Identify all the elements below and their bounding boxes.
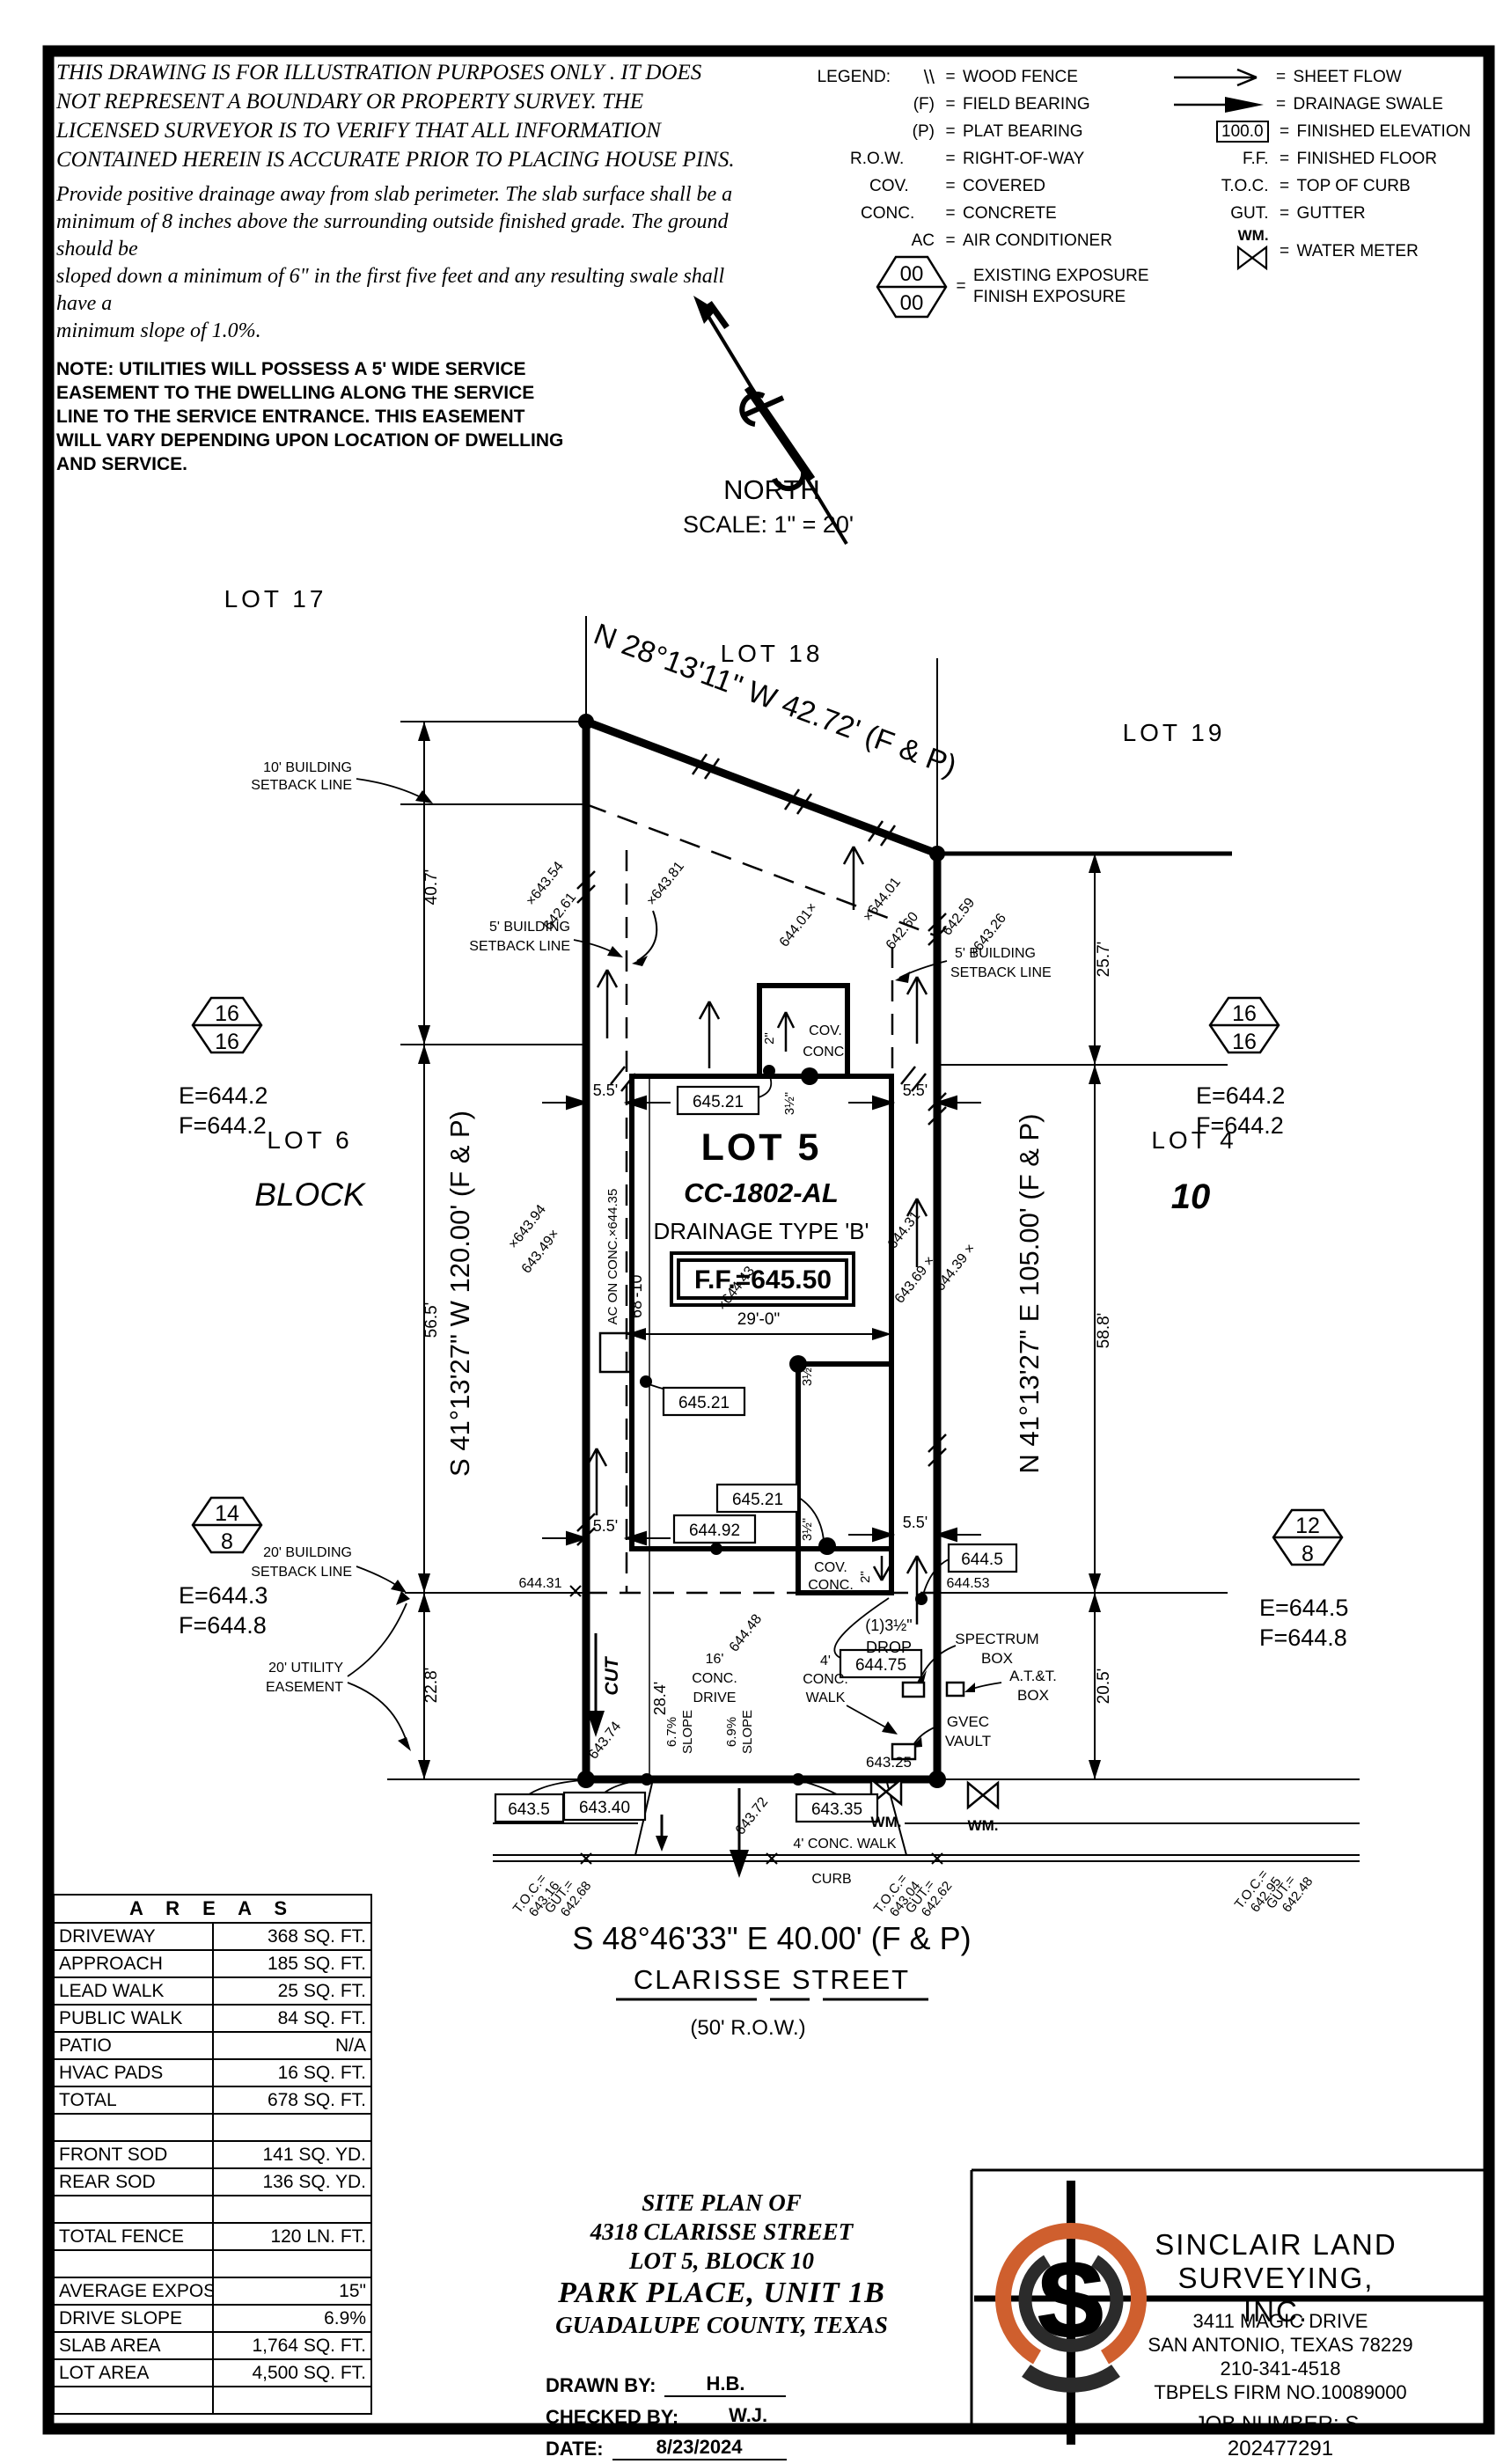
table-row: HVAC PADS16 SQ. FT. [54,2059,371,2086]
dim-29-0: 29'-0" [737,1310,780,1329]
signature-block: DRAWN BY: H.B. CHECKED BY: W.J. DATE: 8/… [546,2365,862,2460]
area-value: N/A [213,2032,372,2059]
street-name: CLARISSE STREET [634,1964,910,1995]
water-meter-legend-sym: WM. [1172,227,1272,276]
table-row: LEAD WALK25 SQ. FT. [54,1977,371,2005]
legend-row: AC=AIR CONDITIONER [799,227,1149,254]
dim-56-5: 56.5' [422,1302,441,1338]
right-bearing: N 41°13'27" E 105.00' (F & P) [1014,1113,1045,1473]
date-value: 8/23/2024 [612,2436,787,2460]
legend-row: COV.=COVERED [799,172,1149,200]
spectrum-l2: BOX [981,1650,1013,1667]
table-row [54,2114,371,2141]
legend-label: FINISHED FLOOR [1297,150,1437,169]
elev-64325: 643.25 [866,1754,912,1771]
area-value: 185 SQ. FT. [213,1950,372,1977]
area-value: 1,764 SQ. FT. [213,2332,372,2359]
spot-elev: ×644.01 [861,875,904,924]
exposure-legend-text: EXISTING EXPOSURE FINISH EXPOSURE [973,266,1149,308]
slope69-a: 6.9% [724,1717,739,1747]
title-block: SITE PLAN OF 4318 CLARISSE STREET LOT 5,… [488,2189,955,2340]
area-value: 141 SQ. YD. [213,2141,372,2168]
areas-table: A R E A S DRIVEWAY368 SQ. FT. APPROACH18… [53,1894,372,2415]
area-value: 136 SQ. YD. [213,2168,372,2196]
elev-box: 643.35 [811,1800,862,1819]
leader-arrowheads [391,790,975,1751]
drawn-by-value: H.B. [664,2372,786,2397]
area-label: DRIVE SLOPE [54,2305,213,2332]
exposure-finish: 8 [221,1529,233,1554]
finished-elevation-sym: 100.0 [1216,121,1269,143]
table-row: PUBLIC WALK84 SQ. FT. [54,2005,371,2032]
dim-5-5-ur: 5.5' [903,1082,928,1099]
elev-box: 645.21 [693,1093,744,1111]
title-line5: GUADALUPE COUNTY, TEXAS [488,2311,955,2340]
legend-left-column: LEGEND: \\ = WOOD FENCE (F)=FIELD BEARIN… [799,63,1149,319]
table-row [54,2196,371,2223]
firm-phone: 210-341-4518 [1144,2357,1417,2380]
exposure-existing: 14 [215,1501,239,1526]
drawn-by-label: DRAWN BY: [546,2374,656,2397]
e-elev: E=644.5 [1259,1595,1348,1621]
half3: 3½" [800,1518,815,1541]
areas-table-block: A R E A S DRIVEWAY368 SQ. FT. APPROACH18… [53,1894,372,2415]
area-label: PUBLIC WALK [54,2005,213,2032]
dim-5-5-ll: 5.5' [593,1517,618,1535]
gvec-l2: VAULT [945,1733,991,1749]
table-row: LOT AREA4,500 SQ. FT. [54,2359,371,2387]
field-bearing-sym: (F) [896,95,938,114]
legend: LEGEND: \\ = WOOD FENCE (F)=FIELD BEARIN… [799,63,1470,319]
setback5R-l2: SETBACK LINE [950,965,1052,980]
table-row [54,2250,371,2277]
legend-row: WM. =WATER METER [1172,227,1471,276]
exposure-bottom: 00 [900,291,924,315]
elev-box: 645.21 [732,1491,783,1509]
area-value: 6.9% [213,2305,372,2332]
wm2-label: WM. [968,1817,999,1834]
half2: 3½" [800,1363,815,1386]
slope67-a: 6.7% [664,1717,679,1747]
walk4-a: 4' [820,1654,831,1668]
curb-label: CURB [811,1872,851,1887]
wood-fence-icon: \\ [896,66,938,89]
spot-elev: 644.48 [727,1611,766,1654]
plat-bearing-sym: (P) [896,122,938,142]
area-label: TOTAL [54,2086,213,2114]
firm-address-1: 3411 MAGIC DRIVE [1144,2309,1417,2333]
walk4-b: CONC. [803,1672,848,1687]
ff-value: F.F.=645.50 [694,1265,832,1294]
att-l2: BOX [1017,1687,1049,1704]
water-meter-legend-icon [1236,245,1269,271]
legend-label: SHEET FLOW [1294,68,1402,87]
area-value: 16 SQ. FT. [213,2059,372,2086]
half1: 3½" [782,1092,797,1115]
legend-label: GUTTER [1297,204,1366,224]
legend-label: FIELD BEARING [963,95,1090,114]
table-row [54,2387,371,2414]
dim-25-7: 25.7' [1095,942,1113,978]
dim-20-5: 20.5' [1095,1668,1113,1705]
legend-row: F.F.=FINISHED FLOOR [1172,145,1471,172]
elev-box: 644.5 [961,1551,1003,1569]
att-l1: A.T.&T. [1009,1668,1057,1684]
disclaimer-para1: THIS DRAWING IS FOR ILLUSTRATION PURPOSE… [56,58,760,174]
ac-sym: AC [896,231,938,251]
legend-row: CONC.=CONCRETE [799,200,1149,227]
logo-letter: S [1037,2242,1106,2358]
legend-row: LEGEND: \\ = WOOD FENCE [799,63,1149,91]
spot-elev: 644.53 [947,1576,990,1591]
block-word: BLOCK [254,1177,367,1213]
utility-easement-l1: 20' UTILITY [268,1661,343,1676]
table-row: PATION/A [54,2032,371,2059]
area-value: 4,500 SQ. FT. [213,2359,372,2387]
drainage-type: DRAINAGE TYPE 'B' [654,1218,869,1244]
title-line1: SITE PLAN OF [488,2189,955,2218]
e-elev: E=644.2 [1196,1082,1285,1109]
setback20-l1: 20' BUILDING [263,1545,352,1560]
spectrum-l1: SPECTRUM [955,1631,1038,1647]
exposure-finish: 16 [215,1030,239,1054]
scale-label: SCALE: 1" = 20' [683,511,854,538]
conc2: CONC. [808,1578,854,1593]
dim-22-8: 22.8' [422,1668,441,1704]
drive-16: 16' [706,1652,724,1667]
area-label: PATIO [54,2032,213,2059]
legend-label: AIR CONDITIONER [963,231,1112,251]
legend-title: LEGEND: [799,68,896,87]
block-number: 10 [1171,1177,1211,1216]
dim-28-4: 28.4' [651,1682,669,1715]
date-label: DATE: [546,2438,604,2460]
dim-58-8: 58.8' [1095,1313,1113,1349]
table-row: AVERAGE EXPOSURE15" [54,2277,371,2305]
f-elev: F=644.2 [179,1112,267,1139]
legend-row: (P)=PLAT BEARING [799,118,1149,145]
drive-conc: CONC. [692,1671,737,1686]
area-label [54,2196,213,2223]
cov-sym: COV. [869,177,912,196]
front-bearing: S 48°46'33" E 40.00' (F & P) [572,1920,971,1956]
lot17-label: LOT 17 [224,585,327,612]
job-number-label: JOB NUMBER: [1195,2412,1339,2436]
spot-elev: 644.01× [777,900,820,950]
toc-gut-groups: T.O.C.= 643.16 GUT.= 642.68 T.O.C.= 643.… [510,1866,1316,1919]
exposure-existing: 16 [1232,1001,1257,1026]
title-line3: LOT 5, BLOCK 10 [488,2247,955,2276]
row-sym: R.O.W. [850,150,892,169]
firm-address-2: SAN ANTONIO, TEXAS 78229 [1144,2333,1417,2357]
firm-license: TBPELS FIRM NO.10089000 [1144,2380,1417,2404]
existing-exposure-label: EXISTING EXPOSURE [973,266,1149,287]
finished-floor-box: F.F.=645.50 [671,1253,854,1305]
f-elev: F=644.8 [179,1612,267,1639]
drop-l2: DROP [866,1639,912,1656]
title-line4: PARK PLACE, UNIT 1B [488,2276,955,2311]
exposure-hexagon-icon: 00 00 [875,254,949,319]
ac-on-conc: AC ON CONC.×644.35 [605,1189,620,1325]
exposure-existing: 16 [215,1001,239,1026]
toc-sym: T.O.C. [1172,177,1272,196]
area-label: DRIVEWAY [54,1923,213,1950]
date-row: DATE: 8/23/2024 [546,2436,862,2460]
drainage-note: Provide positive drainage away from slab… [56,181,760,345]
exposure-legend-row: 00 00 = EXISTING EXPOSURE FINISH EXPOSUR… [799,254,1149,319]
lot6-label: LOT 6 [267,1126,352,1154]
setback10-l1: 10' BUILDING [263,760,352,775]
setback20-l2: SETBACK LINE [251,1565,352,1580]
finish-exposure-label: FINISH EXPOSURE [973,287,1149,308]
conc1: CONC. [803,1045,848,1060]
elev-box: 643.5 [508,1800,550,1819]
f-elev: F=644.8 [1259,1624,1347,1651]
cc-number: CC-1802-AL [684,1177,839,1208]
dim-68-10: 68'-10" [627,1269,645,1318]
area-label [54,2114,213,2141]
gvec-l1: GVEC [947,1713,989,1730]
legend-label: WATER METER [1297,242,1419,261]
area-label: TOTAL FENCE [54,2223,213,2250]
exposure-finish: 8 [1302,1542,1314,1566]
gut-sym: GUT. [1172,204,1272,224]
area-value: 120 LN. FT. [213,2223,372,2250]
area-label: HVAC PADS [54,2059,213,2086]
checked-by-label: CHECKED BY: [546,2406,678,2429]
lot18-label: LOT 18 [721,640,824,667]
equals: = [938,68,963,87]
drive-drive: DRIVE [693,1690,737,1705]
ff-sym: F.F. [1172,150,1272,169]
disclaimer-block: THIS DRAWING IS FOR ILLUSTRATION PURPOSE… [56,58,760,476]
area-label: LEAD WALK [54,1977,213,2005]
area-label: LOT AREA [54,2359,213,2387]
site-plan-sheet: NORTH SCALE: 1" = 20' [0,0,1496,2464]
conc-sym: CONC. [861,204,903,224]
job-number-row: JOB NUMBER: S-202477291 [1144,2412,1417,2461]
elev-box: 644.92 [689,1522,740,1540]
area-value: 15" [213,2277,372,2305]
spot-elev: 643.69 × [892,1254,938,1307]
exposure-top: 00 [900,262,924,286]
spot-elev: 644.31 [519,1576,562,1591]
cov1: COV. [809,1023,842,1038]
legend-label: RIGHT-OF-WAY [963,150,1084,169]
table-row: FRONT SOD141 SQ. YD. [54,2141,371,2168]
left-bearing: S 41°13'27" W 120.00' (F & P) [444,1111,475,1477]
utility-note: NOTE: UTILITIES WILL POSSESS A 5' WIDE S… [56,357,760,476]
drop-l1: (1)3½" [865,1617,912,1634]
checked-by-value: W.J. [687,2404,809,2429]
legend-row: (F)=FIELD BEARING [799,91,1149,118]
conc-walk-label: 4' CONC. WALK [793,1837,896,1852]
area-value: 25 SQ. FT. [213,1977,372,2005]
elev-box: 645.21 [678,1394,730,1412]
lot19-label: LOT 19 [1123,719,1226,746]
spot-elev: 642.60 [884,909,922,952]
exposure-finish: 16 [1232,1030,1257,1054]
wm1-label: WM. [871,1814,902,1830]
table-row: DRIVE SLOPE6.9% [54,2305,371,2332]
area-label: APPROACH [54,1950,213,1977]
area-value: 84 SQ. FT. [213,2005,372,2032]
checked-by-row: CHECKED BY: W.J. [546,2404,862,2429]
firm-address-block: 3411 MAGIC DRIVE SAN ANTONIO, TEXAS 7822… [1144,2309,1417,2461]
elev-box: 644.75 [855,1656,906,1675]
setback5L-l2: SETBACK LINE [469,939,570,954]
exposure-existing: 12 [1295,1514,1320,1538]
dim-5-5-lr: 5.5' [903,1514,928,1531]
legend-label: PLAT BEARING [963,122,1083,142]
table-row: APPROACH185 SQ. FT. [54,1950,371,1977]
legend-row: =DRAINAGE SWALE [1172,91,1471,118]
area-value [213,2387,372,2414]
e-elev: E=644.3 [179,1582,268,1609]
elev-box: 643.40 [579,1799,630,1817]
table-row: TOTAL678 SQ. FT. [54,2086,371,2114]
walk4-c: WALK [806,1690,846,1705]
drainage-swale-icon [1172,95,1269,114]
area-label [54,2387,213,2414]
spot-elev: 642.59 [940,895,979,938]
legend-row: 100.0=FINISHED ELEVATION [1172,118,1471,145]
areas-title: A R E A S [54,1895,371,1923]
wm-abbrev: WM. [1172,227,1269,245]
north-label: NORTH [723,474,820,505]
table-row: TOTAL FENCE120 LN. FT. [54,2223,371,2250]
table-row: REAR SOD136 SQ. YD. [54,2168,371,2196]
area-value: 678 SQ. FT. [213,2086,372,2114]
spot-elev: 643.74 [586,1719,625,1762]
setback10-l2: SETBACK LINE [251,778,352,793]
legend-row: T.O.C.=TOP OF CURB [1172,172,1471,200]
legend-label: WOOD FENCE [963,68,1078,87]
area-label: SLAB AREA [54,2332,213,2359]
cut-label: CUT [602,1655,622,1695]
setback5R-l1: 5' BUILDING [955,946,1036,961]
table-row: DRIVEWAY368 SQ. FT. [54,1923,371,1950]
table-row: SLAB AREA1,764 SQ. FT. [54,2332,371,2359]
legend-label: TOP OF CURB [1297,177,1411,196]
legend-label: CONCRETE [963,204,1057,224]
area-value [213,2196,372,2223]
area-label: FRONT SOD [54,2141,213,2168]
legend-row: =SHEET FLOW [1172,63,1471,91]
legend-right-column: =SHEET FLOW =DRAINAGE SWALE 100.0=FINISH… [1172,63,1471,319]
slope67-b: SLOPE [680,1710,695,1754]
spot-elev: ×643.81 [644,859,687,908]
area-value [213,2250,372,2277]
street-row: (50' R.O.W.) [690,2016,805,2040]
firm-name-1: SINCLAIR LAND [1144,2228,1408,2262]
legend-label: DRAINAGE SWALE [1294,95,1443,114]
legend-row: GUT.=GUTTER [1172,200,1471,227]
two-b: 2" [858,1571,873,1583]
e-elev: E=644.2 [179,1082,268,1109]
slope69-b: SLOPE [740,1710,755,1754]
area-label: REAR SOD [54,2168,213,2196]
area-value: 368 SQ. FT. [213,1923,372,1950]
legend-label: FINISHED ELEVATION [1297,122,1471,142]
legend-row: R.O.W.=RIGHT-OF-WAY [799,145,1149,172]
title-line2: 4318 CLARISSE STREET [488,2218,955,2247]
sheet-flow-icon [1172,68,1269,87]
area-label: AVERAGE EXPOSURE [54,2277,213,2305]
utility-easement-l2: EASEMENT [266,1680,343,1695]
area-label [54,2250,213,2277]
drawn-by-row: DRAWN BY: H.B. [546,2372,862,2397]
two-a: 2" [762,1032,777,1045]
f-elev: F=644.2 [1196,1112,1284,1139]
cov2: COV. [814,1560,847,1575]
dim-5-5-ul: 5.5' [593,1082,618,1099]
area-value [213,2114,372,2141]
dim-40-7: 40.7' [422,869,441,906]
lot5-label: LOT 5 [701,1126,822,1169]
legend-label: COVERED [963,177,1045,196]
